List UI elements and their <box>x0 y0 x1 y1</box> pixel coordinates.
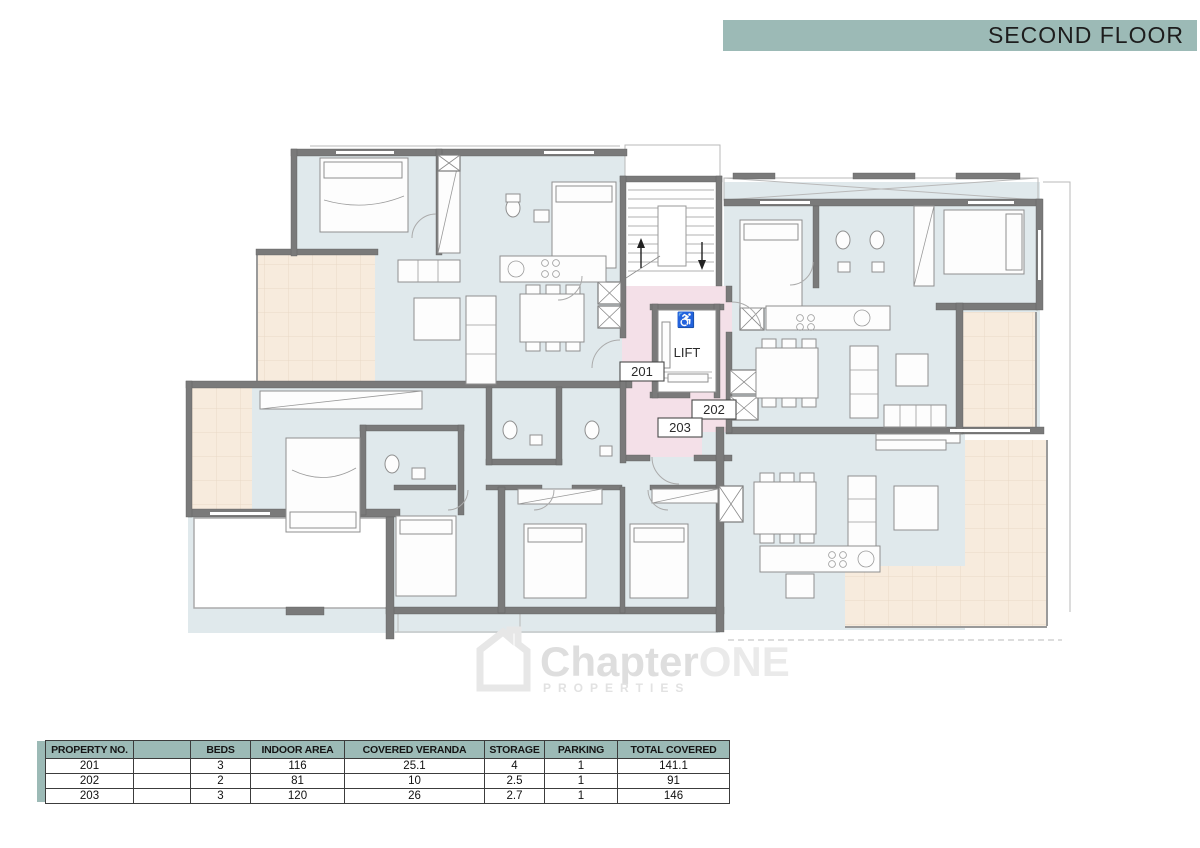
cell: 201 <box>46 759 134 774</box>
cell: 2.7 <box>485 789 545 804</box>
cell: 2.5 <box>485 774 545 789</box>
col-property-no: PROPERTY NO. <box>46 741 134 759</box>
cell: 1 <box>545 759 618 774</box>
cell <box>134 759 191 774</box>
cell: 116 <box>251 759 345 774</box>
watermark-brand: ChapterONE <box>540 638 790 685</box>
page: SECOND FLOOR <box>0 0 1200 848</box>
unit-label-201: 201 <box>620 362 664 381</box>
col-indoor-area: INDOOR AREA <box>251 741 345 759</box>
watermark: ChapterONE PROPERTIES <box>480 630 790 695</box>
table-row-201: 201 3 116 25.1 4 1 141.1 <box>46 759 730 774</box>
cell: 91 <box>618 774 730 789</box>
cell: 2 <box>191 774 251 789</box>
table-accent-strip <box>37 741 45 802</box>
table-row-202: 202 2 81 10 2.5 1 91 <box>46 774 730 789</box>
cell: 202 <box>46 774 134 789</box>
unit-label-202: 202 <box>692 400 736 419</box>
col-parking: PARKING <box>545 741 618 759</box>
cell: 26 <box>345 789 485 804</box>
table-row-203: 203 3 120 26 2.7 1 146 <box>46 789 730 804</box>
lift-label: LIFT <box>674 345 701 360</box>
house-icon <box>480 630 527 688</box>
svg-text:202: 202 <box>703 402 725 417</box>
cell: 141.1 <box>618 759 730 774</box>
svg-text:203: 203 <box>669 420 691 435</box>
floor-plan-drawing: LIFT ♿ <box>0 0 1200 848</box>
col-total-covered: TOTAL COVERED <box>618 741 730 759</box>
watermark-subtitle: PROPERTIES <box>543 681 690 695</box>
units-table: PROPERTY NO. BEDS INDOOR AREA COVERED VE… <box>45 740 730 804</box>
col-blank <box>134 741 191 759</box>
cell: 3 <box>191 759 251 774</box>
unit-label-203: 203 <box>658 418 702 437</box>
cell: 203 <box>46 789 134 804</box>
col-beds: BEDS <box>191 741 251 759</box>
cell: 146 <box>618 789 730 804</box>
cell: 25.1 <box>345 759 485 774</box>
cell: 4 <box>485 759 545 774</box>
cell: 1 <box>545 789 618 804</box>
col-storage: STORAGE <box>485 741 545 759</box>
cell <box>134 774 191 789</box>
table-header-row: PROPERTY NO. BEDS INDOOR AREA COVERED VE… <box>46 741 730 759</box>
col-covered-veranda: COVERED VERANDA <box>345 741 485 759</box>
cell: 10 <box>345 774 485 789</box>
svg-text:201: 201 <box>631 364 653 379</box>
cell: 1 <box>545 774 618 789</box>
wheelchair-accessible-icon: ♿ <box>677 311 696 329</box>
cell: 3 <box>191 789 251 804</box>
cell: 120 <box>251 789 345 804</box>
cell: 81 <box>251 774 345 789</box>
cell <box>134 789 191 804</box>
